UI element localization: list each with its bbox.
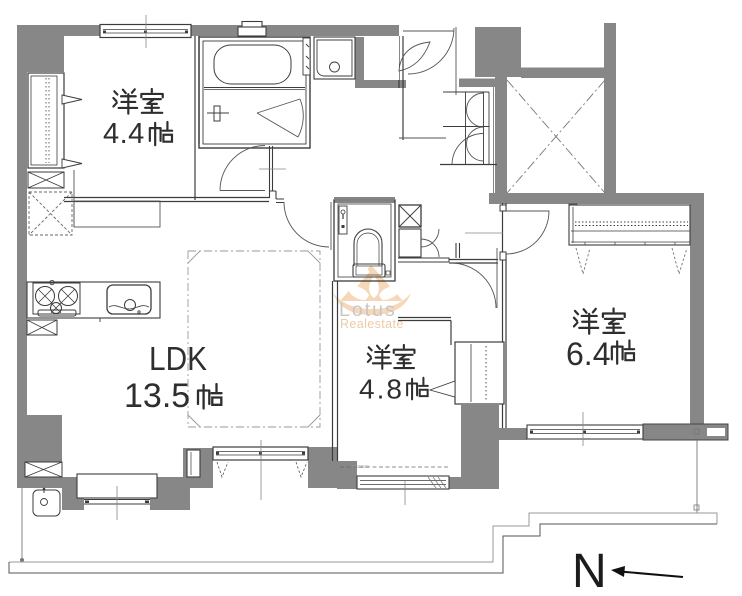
svg-text:6.4: 6.4 — [566, 336, 610, 372]
svg-text:N: N — [572, 545, 607, 596]
svg-text:LDK: LDK — [149, 340, 207, 377]
svg-text:13.5: 13.5 — [124, 377, 190, 415]
svg-text:4.4: 4.4 — [103, 118, 145, 150]
svg-text:Realestate: Realestate — [340, 317, 404, 331]
svg-text:FD2D40: FD2D40 — [352, 464, 369, 469]
svg-text:4.8: 4.8 — [359, 374, 404, 405]
